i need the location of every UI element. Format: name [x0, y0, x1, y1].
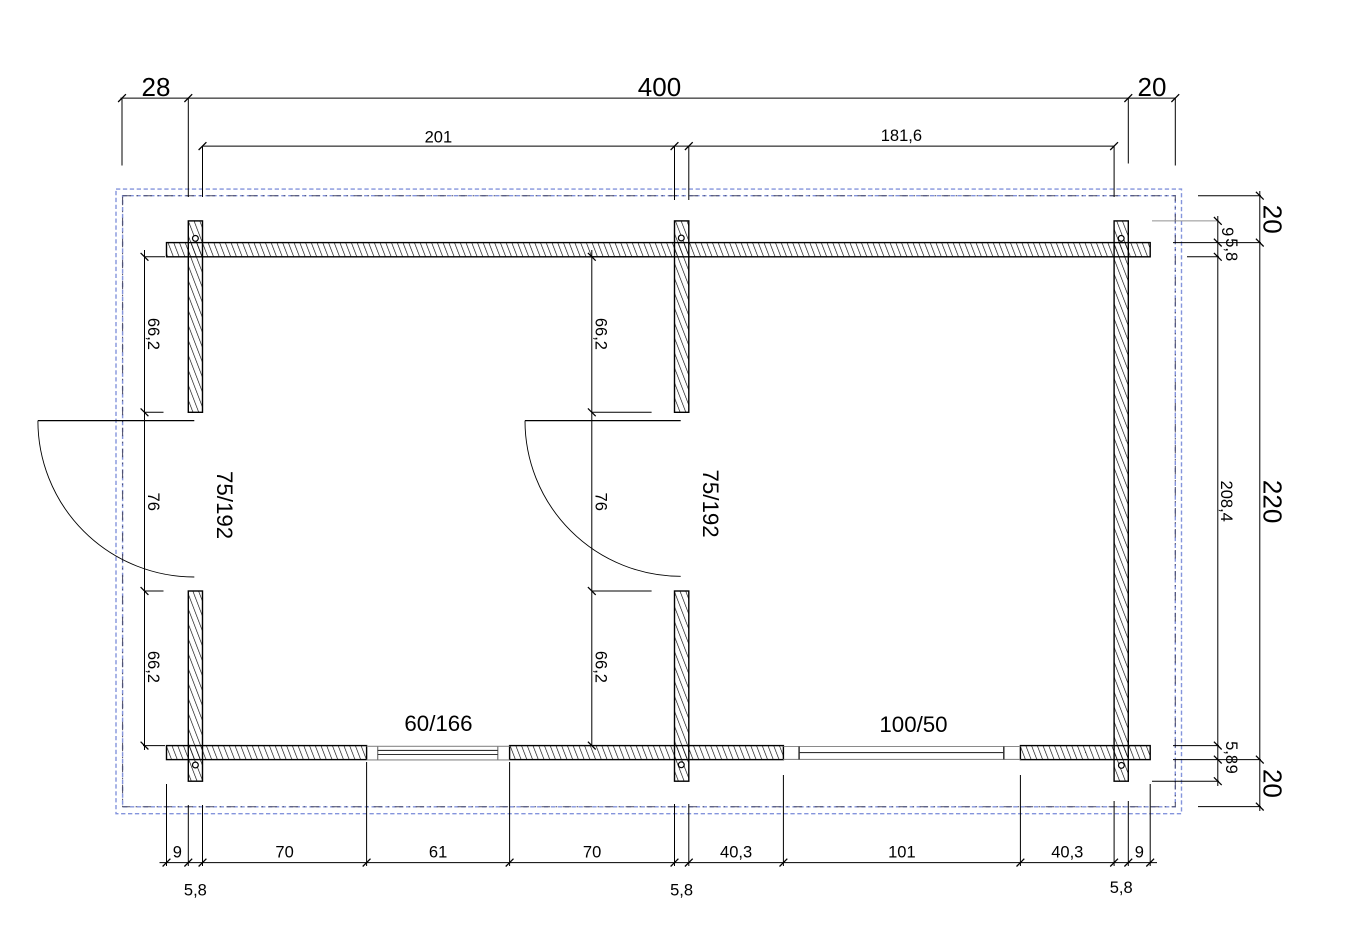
- svg-text:201: 201: [425, 129, 453, 147]
- svg-text:20: 20: [1138, 72, 1167, 102]
- svg-text:181,6: 181,6: [881, 127, 922, 145]
- svg-text:220: 220: [1258, 480, 1288, 523]
- svg-text:9: 9: [173, 844, 182, 862]
- svg-text:9: 9: [1135, 844, 1144, 862]
- svg-text:5,8: 5,8: [1222, 741, 1240, 764]
- svg-text:40,3: 40,3: [1051, 844, 1083, 862]
- svg-text:76: 76: [144, 493, 162, 511]
- svg-text:5,8: 5,8: [1222, 238, 1240, 261]
- svg-text:5,8: 5,8: [1110, 879, 1133, 897]
- svg-text:66,2: 66,2: [591, 318, 609, 350]
- svg-text:75/192: 75/192: [212, 471, 237, 539]
- svg-text:9: 9: [1222, 765, 1240, 774]
- svg-text:100/50: 100/50: [879, 712, 947, 737]
- svg-text:70: 70: [583, 844, 601, 862]
- svg-text:208,4: 208,4: [1217, 481, 1235, 522]
- svg-text:40,3: 40,3: [720, 844, 752, 862]
- svg-text:5,8: 5,8: [670, 882, 693, 900]
- svg-text:61: 61: [429, 844, 447, 862]
- svg-text:28: 28: [142, 72, 171, 102]
- svg-text:20: 20: [1258, 205, 1288, 234]
- svg-text:20: 20: [1258, 769, 1288, 798]
- svg-text:66,2: 66,2: [144, 651, 162, 683]
- svg-text:9: 9: [1218, 227, 1236, 236]
- svg-text:101: 101: [888, 844, 916, 862]
- svg-text:76: 76: [591, 493, 609, 511]
- svg-text:66,2: 66,2: [144, 318, 162, 350]
- svg-text:70: 70: [275, 844, 293, 862]
- svg-text:75/192: 75/192: [698, 469, 723, 537]
- svg-text:400: 400: [638, 72, 681, 102]
- svg-text:5,8: 5,8: [184, 882, 207, 900]
- svg-text:60/166: 60/166: [404, 711, 472, 736]
- svg-text:66,2: 66,2: [591, 651, 609, 683]
